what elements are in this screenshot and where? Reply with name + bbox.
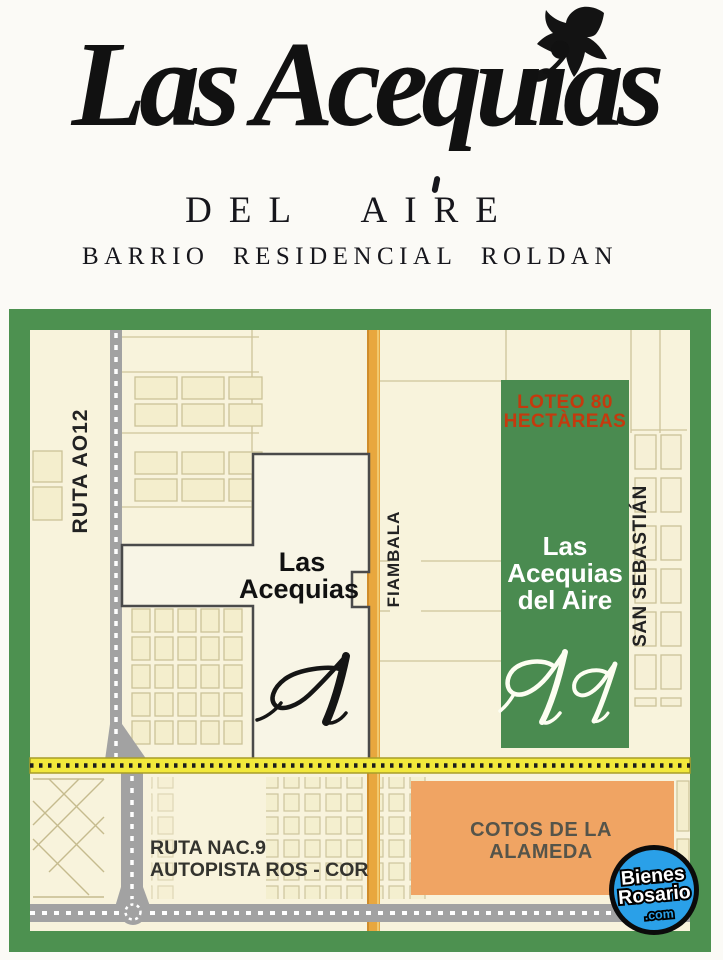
svg-text:RUTA NAC.9: RUTA NAC.9 bbox=[150, 837, 266, 859]
svg-text:Acequias: Acequias bbox=[507, 558, 623, 588]
svg-text:LOTEO 80: LOTEO 80 bbox=[517, 392, 613, 413]
svg-text:.com: .com bbox=[644, 906, 674, 922]
svg-text:RUTA AO12: RUTA AO12 bbox=[69, 409, 92, 534]
svg-text:FIAMBALA: FIAMBALA bbox=[384, 511, 403, 608]
svg-text:AUTOPISTA ROS - COR: AUTOPISTA ROS - COR bbox=[150, 859, 368, 881]
svg-text:Las: Las bbox=[543, 531, 588, 561]
svg-text:ALAMEDA: ALAMEDA bbox=[489, 841, 593, 863]
svg-text:SAN SEBASTIÁN: SAN SEBASTIÁN bbox=[629, 485, 651, 647]
svg-text:Las: Las bbox=[279, 547, 326, 577]
svg-text:HECTÀREAS: HECTÀREAS bbox=[504, 410, 627, 432]
svg-text:del Aire: del Aire bbox=[518, 585, 612, 615]
svg-text:Acequias: Acequias bbox=[239, 574, 359, 604]
svg-text:COTOS DE LA: COTOS DE LA bbox=[470, 819, 612, 841]
